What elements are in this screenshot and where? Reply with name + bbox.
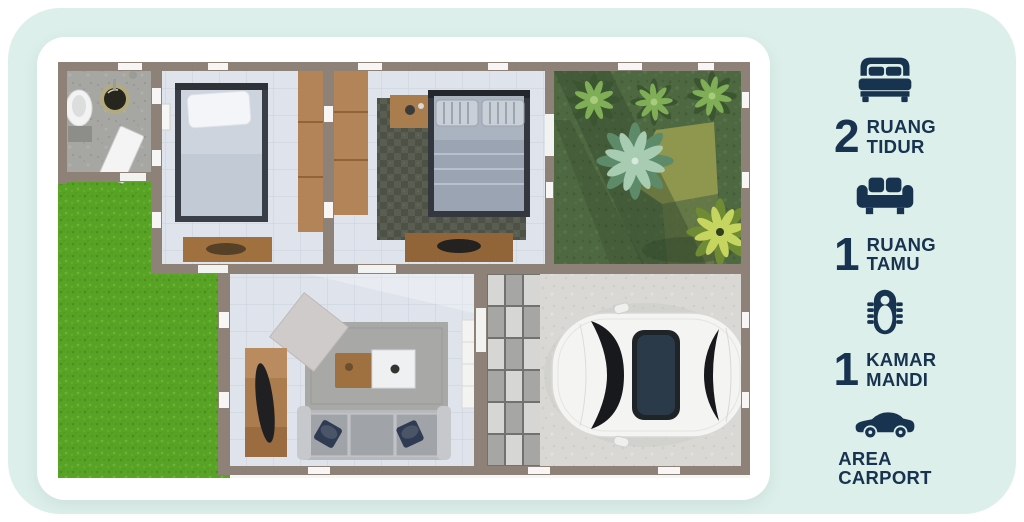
bathroom-count: 1 <box>834 350 859 389</box>
pillow <box>482 100 524 126</box>
floor-plan-card <box>37 37 770 500</box>
bedroom-label-line1: RUANG <box>867 117 936 137</box>
bathroom-label-line1: KAMAR <box>866 350 936 370</box>
bed-icon <box>854 54 916 103</box>
stat-living-room: 1 RUANG TAMU <box>834 235 936 275</box>
carport-label-line2: CARPORT <box>838 468 932 488</box>
pillow <box>187 91 251 128</box>
bedroom-label-line2: TIDUR <box>867 137 936 157</box>
wardrobe-2 <box>334 70 368 215</box>
stat-bedrooms: 2 RUANG TIDUR <box>834 117 936 157</box>
bathtub-icon <box>865 286 905 338</box>
living-room-count: 1 <box>834 235 859 274</box>
floor-plan <box>58 62 750 478</box>
wardrobe-1 <box>298 67 324 232</box>
living-room-label-line1: RUANG <box>867 235 936 255</box>
pillow <box>436 100 478 126</box>
stat-bathroom: 1 KAMAR MANDI <box>834 350 937 390</box>
carport-label-line1: AREA <box>838 449 932 469</box>
side-garden <box>554 71 750 268</box>
shower-head <box>129 71 137 79</box>
paver-path <box>487 274 540 466</box>
feature-sidebar: 2 RUANG TIDUR 1 RUANG TAMU <box>782 42 988 500</box>
coffee-table <box>335 353 372 388</box>
toilet <box>68 126 92 142</box>
stat-carport: AREA CARPORT <box>838 449 932 489</box>
sofa-icon <box>854 173 916 217</box>
bedroom-count: 2 <box>834 117 859 156</box>
bathroom-label-line2: MANDI <box>866 370 936 390</box>
living-room-label-line2: TAMU <box>867 254 936 274</box>
car-icon <box>853 408 917 441</box>
car <box>544 302 748 448</box>
